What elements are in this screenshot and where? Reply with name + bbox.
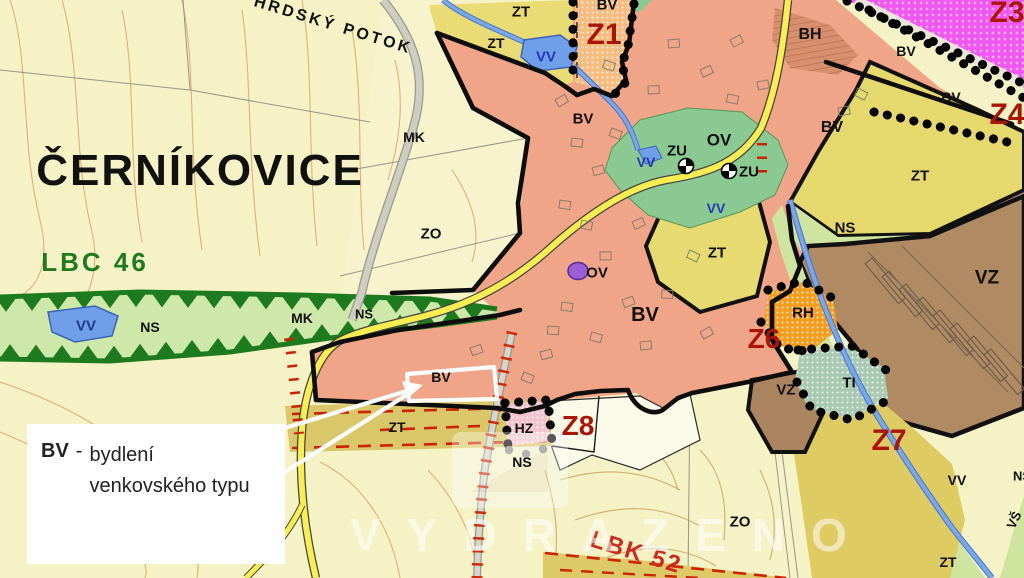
ov-point [568, 263, 588, 280]
watermark-logo [452, 432, 568, 508]
legend-zone-code: BV [41, 440, 69, 463]
legend-box: BV - bydlení venkovského typu [27, 424, 285, 564]
monument-symbol-2 [722, 164, 737, 179]
monument-symbol-1 [679, 159, 694, 174]
legend-zone-description: bydlení venkovského typu [89, 440, 274, 502]
legend-separator: - [76, 440, 83, 463]
zoning-map: ČERNÍKOVICEHRDSKÝ POTOKMKZOZTZTVVBVZ1BHB… [0, 0, 1024, 578]
